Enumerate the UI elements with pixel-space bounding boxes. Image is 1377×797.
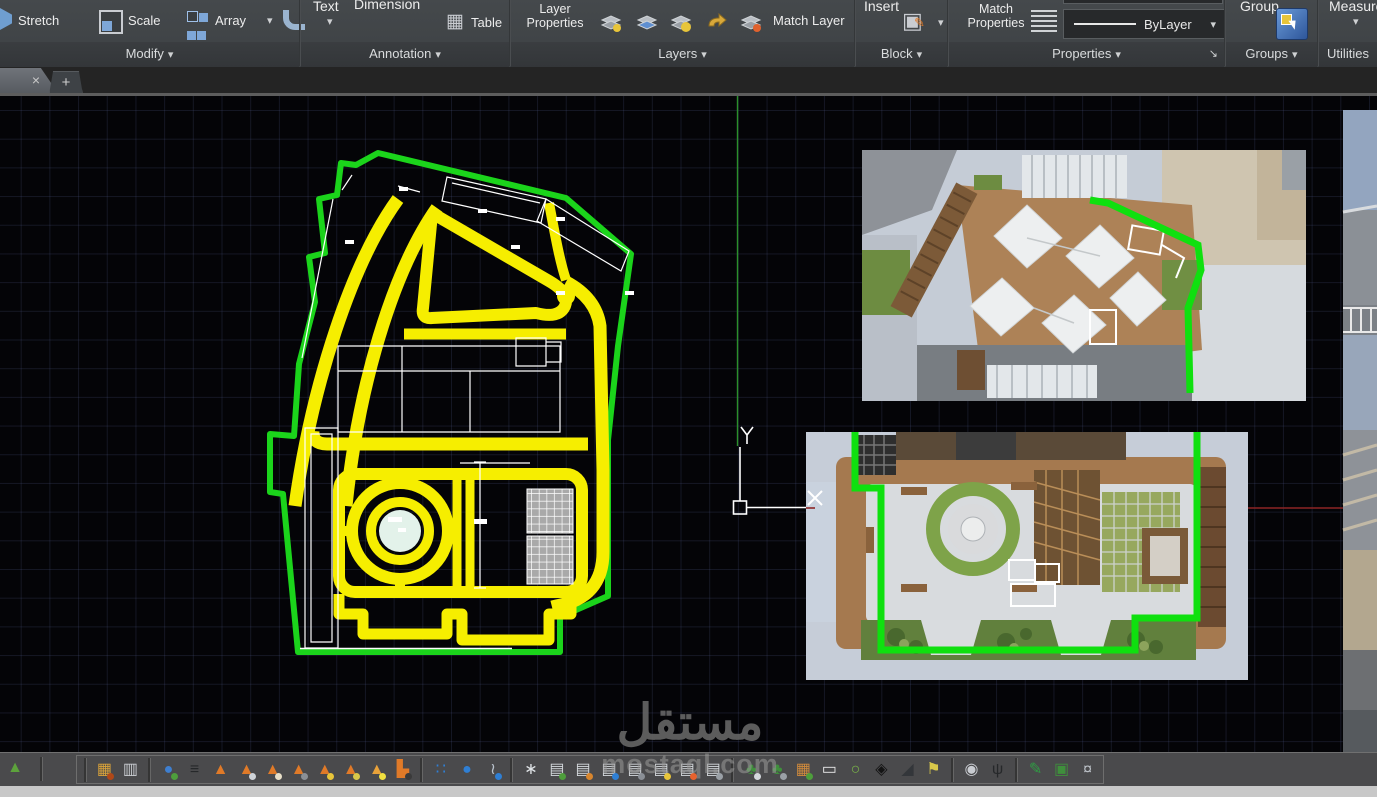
green-pencil-icon[interactable]: ✎	[1023, 757, 1048, 783]
linetype-sample-icon	[1074, 23, 1136, 25]
layer-freeze-icon[interactable]	[599, 12, 623, 34]
autocad-window: Stretch Scale Array ▾ Modify▾ Text ▾ Dim…	[0, 0, 1377, 797]
lineweight-icon[interactable]	[1031, 10, 1057, 32]
stretch-icon	[0, 8, 12, 30]
render-image-edge-strip[interactable]	[1343, 110, 1377, 752]
book-globe-icon[interactable]: ▣	[1049, 757, 1074, 783]
water-drop-icon[interactable]: ●	[454, 757, 479, 783]
panel-annotation: Text ▾ Dimension ▦ Table Annotation▾	[301, 0, 509, 67]
camera-tripod-icon[interactable]: ◉	[959, 757, 984, 783]
chevron-down-icon: ▾	[1115, 49, 1121, 61]
materials-palette-icon[interactable]: ▦	[92, 757, 117, 783]
panel-label-modify[interactable]: Modify▾	[0, 42, 299, 67]
measure-button[interactable]: Measure	[1329, 0, 1377, 14]
panel-label-properties[interactable]: Properties▾ ↘	[949, 42, 1224, 67]
dialog-launcher-icon[interactable]: ↘	[1209, 42, 1218, 66]
linetype-value: ByLayer	[1144, 17, 1192, 32]
north-compass-icon[interactable]: ◈	[869, 757, 894, 783]
drawing-tab[interactable]: ×	[0, 68, 58, 93]
array-button[interactable]: Array	[215, 13, 246, 28]
match-layer-button[interactable]: Match Layer	[773, 13, 845, 28]
group-icon[interactable]	[1276, 8, 1308, 40]
bottom-strip	[0, 786, 1377, 797]
panel-block: Insert ▣✎ ▾ Block▾	[856, 0, 947, 67]
panel-utilities: Measure ▾ Utilities	[1319, 0, 1377, 67]
close-icon[interactable]: ×	[32, 72, 40, 88]
walk-person-icon[interactable]: ψ	[985, 757, 1010, 783]
hatch-area	[527, 489, 573, 533]
chevron-down-icon: ▾	[435, 49, 441, 61]
insert-button[interactable]: Insert	[864, 0, 899, 14]
color-samples-icon[interactable]: ▥	[118, 757, 143, 783]
render-image-courtyard[interactable]	[806, 432, 1248, 680]
terrain-edge-icon[interactable]: ▲	[2, 755, 28, 781]
array-icon	[187, 10, 209, 32]
new-tab-button[interactable]: +	[49, 71, 83, 95]
chevron-down-icon: ▾	[1292, 49, 1298, 61]
group-button[interactable]: Group	[1240, 0, 1279, 14]
hatch-area	[527, 536, 573, 584]
chevron-down-icon[interactable]: ▾	[327, 15, 333, 28]
panel-label-groups[interactable]: Groups▾	[1226, 42, 1317, 67]
file-tab-bar: × +	[0, 67, 1377, 96]
hill-marker-icon[interactable]: ▲	[312, 757, 337, 783]
watermark-domain: mostaql.com	[575, 749, 805, 780]
drawing-canvas[interactable]	[0, 96, 1377, 752]
separator	[148, 758, 151, 782]
globe-icon[interactable]: ●	[156, 757, 181, 783]
water-drops-icon[interactable]: ∷	[428, 757, 453, 783]
separator	[420, 758, 423, 782]
separator	[1015, 758, 1018, 782]
hill-icon[interactable]: ▲	[208, 757, 233, 783]
hill-contour-icon[interactable]: ▲	[286, 757, 311, 783]
hill-path-icon[interactable]: ▲	[338, 757, 363, 783]
sign-post-icon[interactable]: ⚑	[921, 757, 946, 783]
ribbon: Stretch Scale Array ▾ Modify▾ Text ▾ Dim…	[0, 0, 1377, 67]
doc-tree-icon[interactable]: ▤	[544, 757, 569, 783]
table-icon: ▦	[446, 13, 466, 31]
layer-previous-icon[interactable]	[705, 12, 729, 34]
chevron-down-icon: ▾	[168, 49, 174, 61]
dump-truck-icon[interactable]: ▙	[390, 757, 415, 783]
terrain-levels-icon[interactable]: ≡	[182, 757, 207, 783]
panel-label-layers[interactable]: Layers▾	[511, 42, 854, 67]
table-button[interactable]: Table	[471, 15, 502, 30]
panel-label-block[interactable]: Block▾	[856, 42, 947, 67]
text-button[interactable]: Text	[313, 0, 339, 14]
panel-label-annotation[interactable]: Annotation▾	[301, 42, 509, 67]
panel-properties: Match Properties ByLayer ▾ Properties▾ ↘	[949, 0, 1224, 67]
cad-site-plan[interactable]	[270, 153, 634, 652]
scale-icon	[99, 10, 123, 34]
hill-layers-icon[interactable]: ▲	[234, 757, 259, 783]
dimension-button[interactable]: Dimension	[354, 0, 420, 12]
plus-icon: +	[62, 74, 71, 91]
panel-label-utilities[interactable]: Utilities	[1319, 42, 1377, 67]
panel-groups: Group Groups▾	[1226, 0, 1317, 67]
spray-icon[interactable]: ∗	[518, 757, 543, 783]
render-image-shade-sails[interactable]	[862, 150, 1306, 401]
separator	[40, 757, 43, 781]
hill-flash-icon[interactable]: ▲	[364, 757, 389, 783]
chevron-down-icon: ▾	[917, 49, 923, 61]
watermark-title: مستقل	[575, 694, 805, 751]
pickbox	[734, 501, 747, 514]
camera-stars-icon[interactable]: ¤	[1075, 757, 1100, 783]
chevron-down-icon[interactable]: ▾	[1353, 15, 1359, 28]
separator	[84, 758, 87, 782]
block-edit-icon[interactable]: ▣✎	[902, 8, 928, 34]
scale-button[interactable]: Scale	[128, 13, 161, 28]
chevron-down-icon[interactable]: ▾	[267, 14, 273, 27]
stretch-button[interactable]: Stretch	[18, 13, 59, 28]
region-tool-icon[interactable]: ○	[843, 757, 868, 783]
chevron-down-icon[interactable]: ▾	[1210, 18, 1216, 31]
panel-layers: Layer Properties Match Layer Layers▾	[511, 0, 854, 67]
layer-on-icon[interactable]	[669, 12, 693, 34]
hose-icon[interactable]: ≀	[480, 757, 505, 783]
viewport-icon[interactable]: ▭	[817, 757, 842, 783]
layer-state-icon[interactable]	[739, 12, 763, 34]
color-combo-partial[interactable]	[1063, 0, 1223, 4]
hill-base-icon[interactable]: ▲	[260, 757, 285, 783]
separator	[951, 758, 954, 782]
panel-modify: Stretch Scale Array ▾ Modify▾	[0, 0, 299, 67]
match-properties-button[interactable]: Match Properties	[963, 2, 1029, 30]
separator	[510, 758, 513, 782]
slope-tool-icon[interactable]: ◢	[895, 757, 920, 783]
layer-isolate-icon[interactable]	[635, 12, 659, 34]
layer-properties-button[interactable]: Layer Properties	[519, 2, 591, 30]
ucs-y-label	[741, 427, 753, 444]
chevron-down-icon[interactable]: ▾	[938, 16, 944, 29]
chevron-down-icon: ▾	[701, 49, 707, 61]
cad-viewport	[0, 96, 1377, 752]
linetype-combo[interactable]: ByLayer ▾	[1063, 9, 1225, 39]
